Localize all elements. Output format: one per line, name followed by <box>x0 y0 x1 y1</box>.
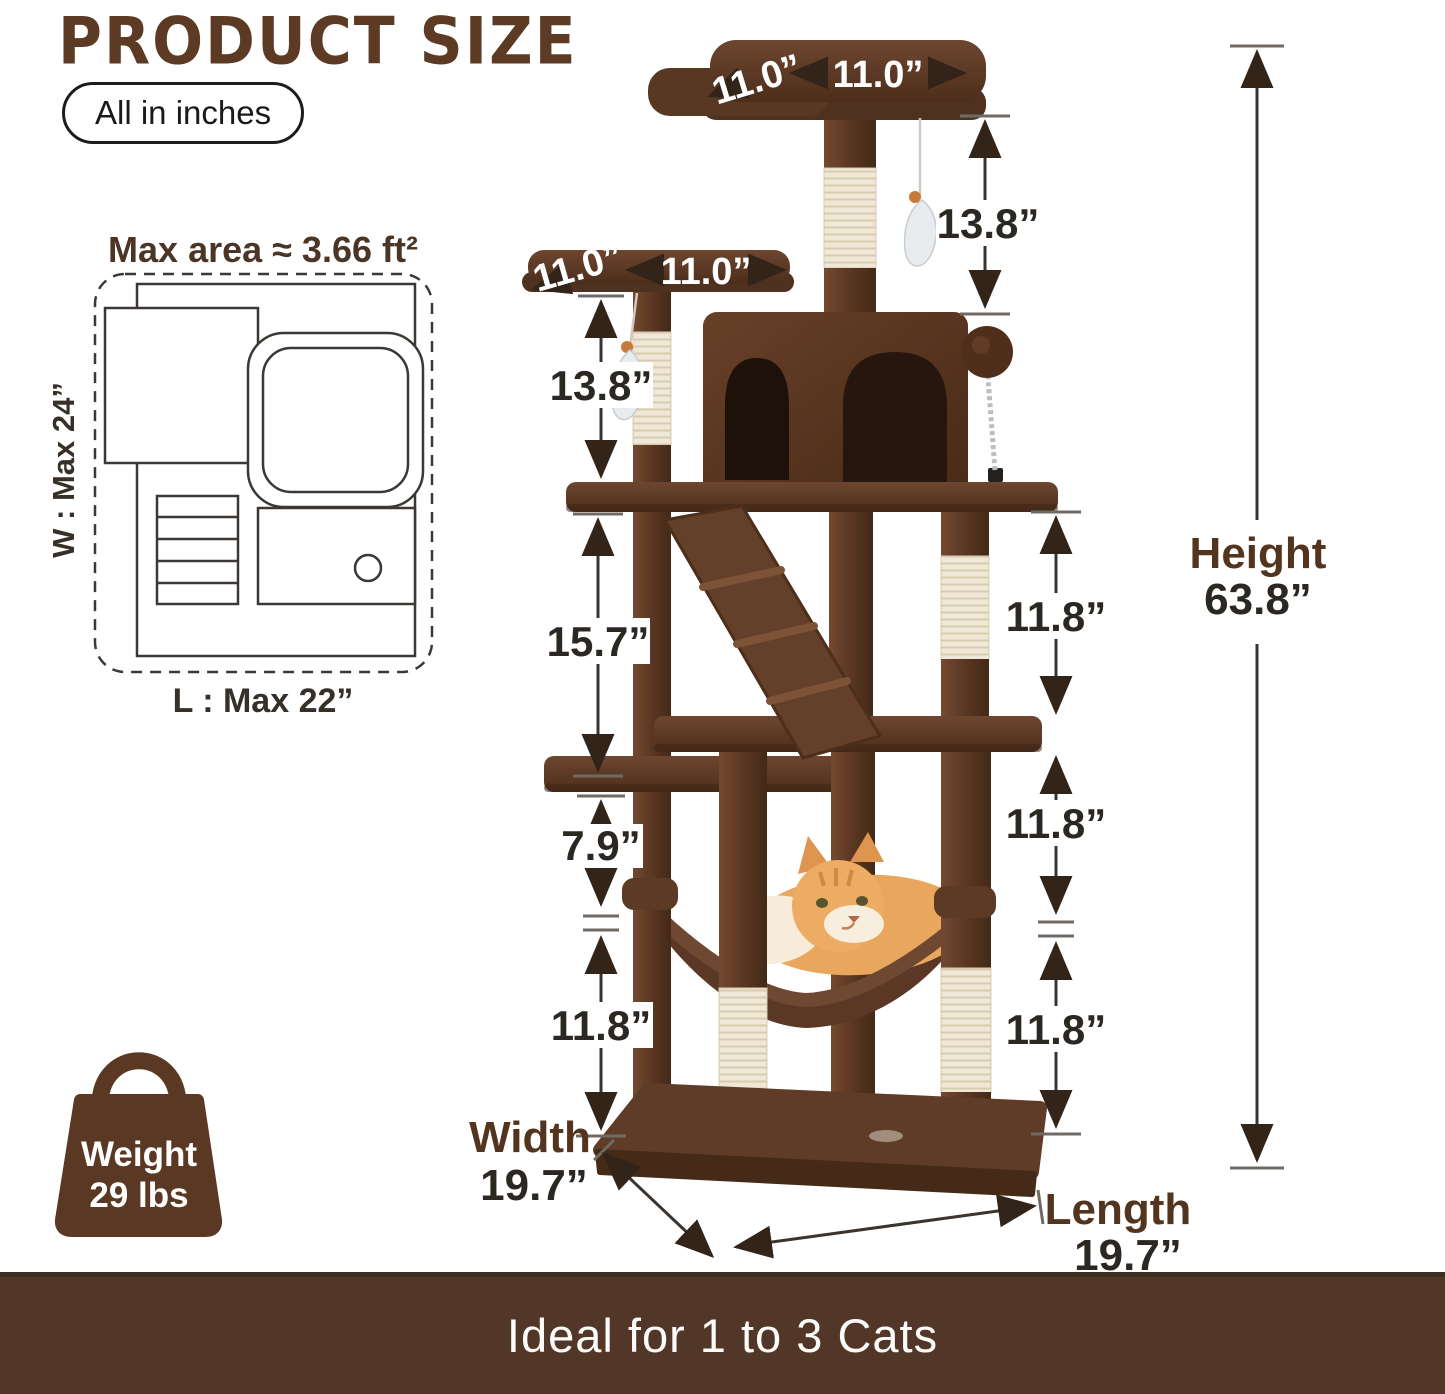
length-dimension: Length 19.7” <box>736 1185 1191 1272</box>
dim-upper-to-platform: 13.8” <box>550 362 653 409</box>
weight-badge: Weight 29 lbs <box>61 1061 216 1231</box>
dim-top-perch-width: 11.0” <box>833 54 924 96</box>
footer-banner-text: Ideal for 1 to 3 Cats <box>507 1308 938 1363</box>
floor-plan-length-label: L : Max 22” <box>173 682 354 720</box>
footer-banner: Ideal for 1 to 3 Cats <box>0 1272 1445 1394</box>
dim-upper-perch-width: 11.0” <box>661 251 752 293</box>
floor-plan-perch-inner <box>263 348 408 492</box>
height-value: 63.8” <box>1204 575 1312 624</box>
width-label: Width <box>469 1113 591 1162</box>
dim-right-middle-post: 11.8” <box>1006 800 1106 847</box>
length-label: Length <box>1045 1185 1192 1234</box>
brand-logo-mark <box>869 1130 903 1142</box>
length-value: 19.7” <box>1074 1231 1182 1272</box>
cat-eye-right <box>856 896 868 906</box>
width-value: 19.7” <box>480 1161 588 1210</box>
product-size-diagram: Max area ≈ 3.66 ft² W : Max 24” L : Max … <box>0 0 1445 1272</box>
dimension-annotations: 11.0” 11.0” 13.8” 11.0” 11.0” 13.8” 15.7… <box>469 46 1327 1272</box>
dim-platform-to-hammock: 7.9” <box>561 822 640 869</box>
floor-plan-left-platform <box>105 308 258 463</box>
height-dimension: Height 63.8” <box>1190 46 1327 1168</box>
top-perch <box>648 40 986 120</box>
dim-right-upper-post: 11.8” <box>1006 593 1106 640</box>
base-platform <box>598 1090 1040 1194</box>
floor-plan-post-hole <box>355 555 381 581</box>
floor-plan-right-platform <box>258 508 415 604</box>
weight-label: Weight <box>81 1135 197 1174</box>
dim-mid-section: 15.7” <box>547 618 650 665</box>
floor-plan-ladder <box>157 496 238 604</box>
height-label: Height <box>1190 529 1327 578</box>
dim-top-to-condo: 13.8” <box>937 200 1040 247</box>
floor-plan: Max area ≈ 3.66 ft² W : Max 24” L : Max … <box>46 229 432 720</box>
mouse-toy-top <box>905 118 937 266</box>
cat-eye-left <box>816 898 828 908</box>
spring-ball-toy <box>961 326 1013 482</box>
condo-side-opening <box>725 358 789 480</box>
weight-value: 29 lbs <box>89 1176 188 1215</box>
condo-front-opening <box>843 352 947 500</box>
max-area-label: Max area ≈ 3.66 ft² <box>108 229 418 270</box>
dim-left-lower-post: 11.8” <box>551 1002 651 1049</box>
dim-right-lower-post: 11.8” <box>1006 1006 1106 1053</box>
floor-plan-width-label: W : Max 24” <box>46 382 81 558</box>
